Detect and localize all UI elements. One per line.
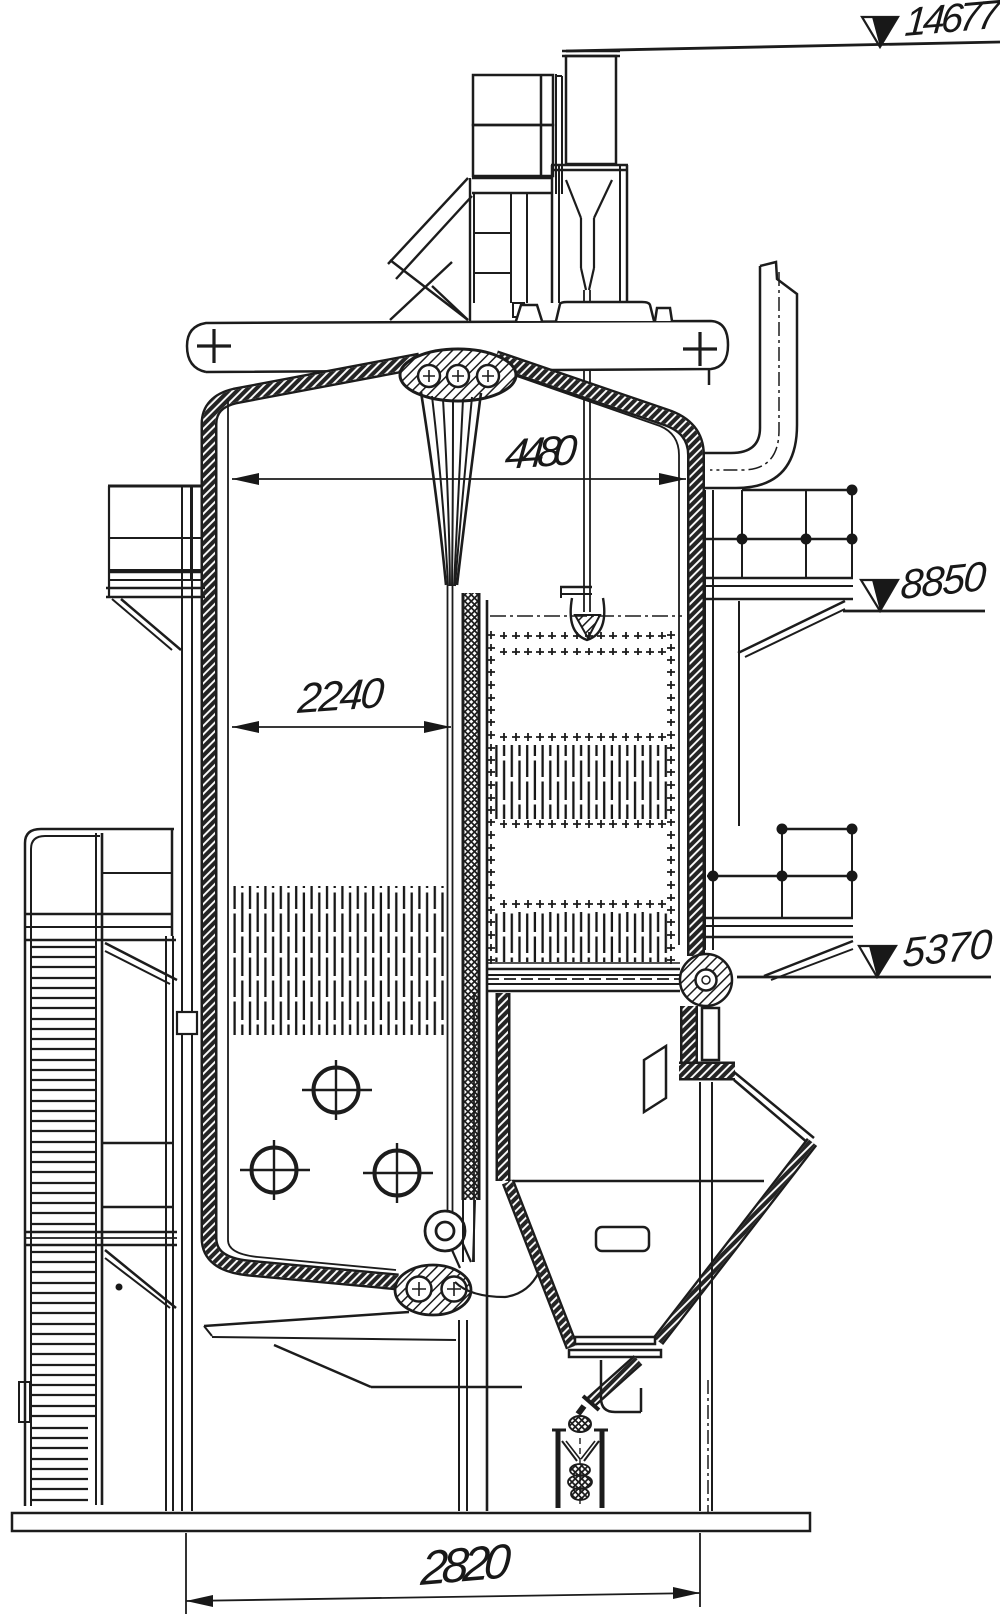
svg-text:5370: 5370 (902, 920, 994, 976)
svg-text:8850: 8850 (900, 553, 988, 608)
svg-text:2240: 2240 (295, 669, 386, 722)
svg-text:2820: 2820 (418, 1534, 513, 1596)
svg-text:4480: 4480 (503, 426, 579, 478)
